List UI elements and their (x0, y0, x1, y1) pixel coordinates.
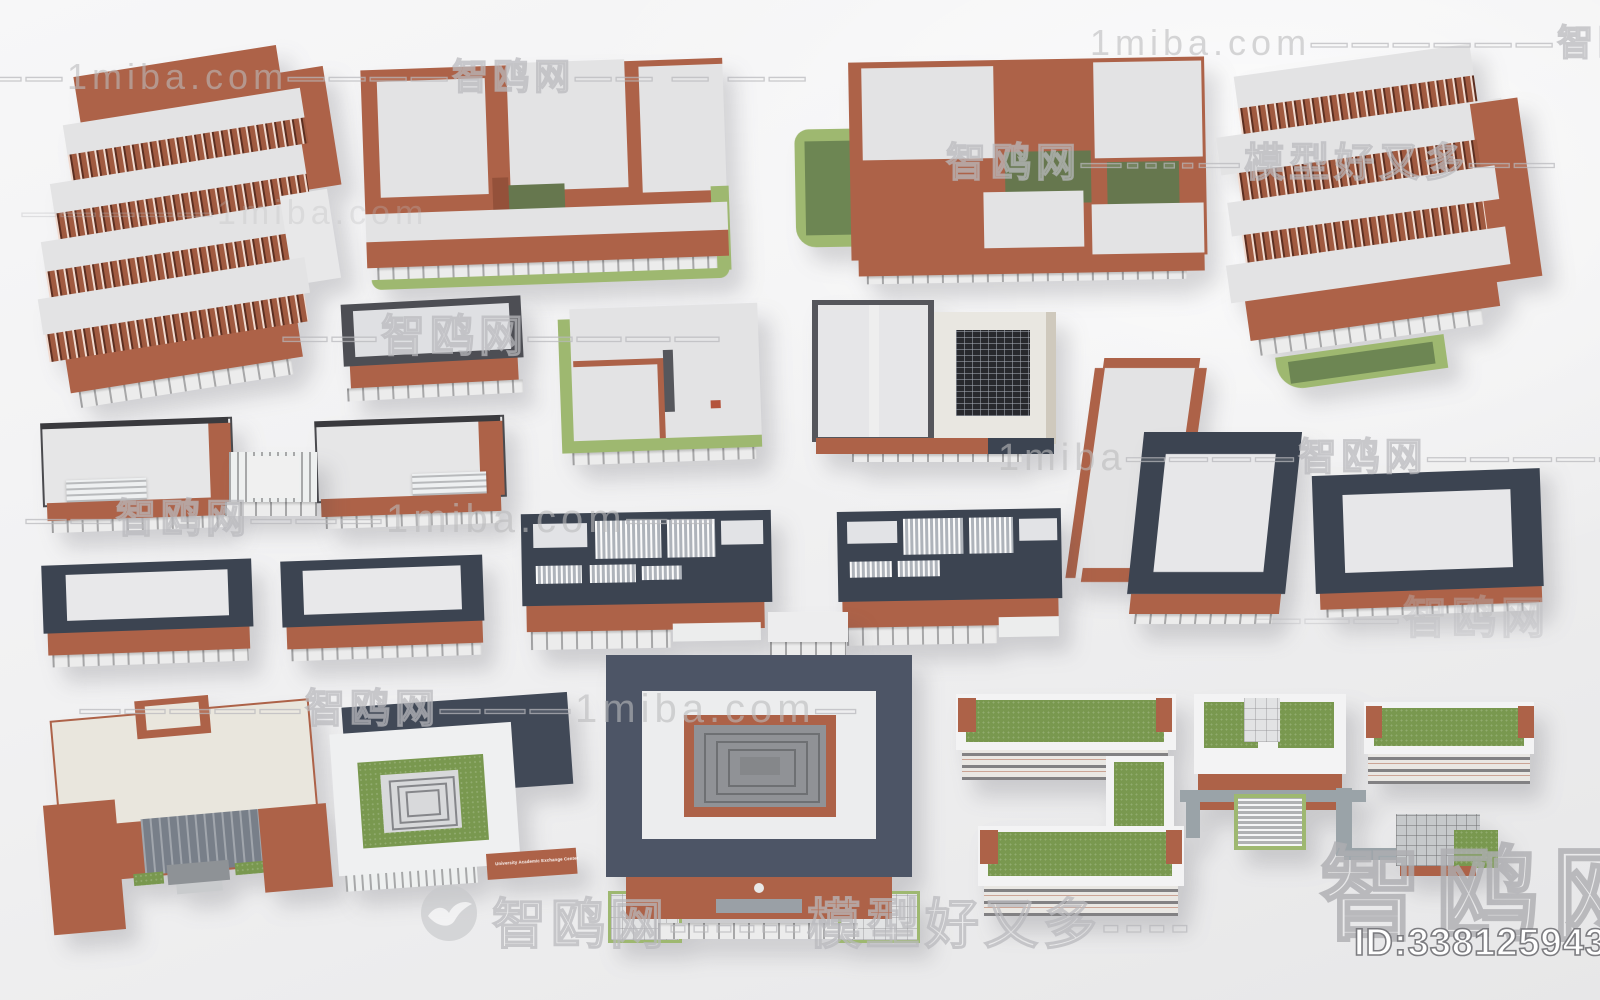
building-part (1244, 698, 1280, 742)
building-part (898, 560, 940, 577)
building-part (533, 523, 587, 548)
building-part (1336, 788, 1352, 856)
building-part (536, 565, 582, 584)
building-part (1046, 312, 1056, 444)
building-part (711, 400, 721, 408)
building-part (740, 757, 780, 775)
building-part (412, 471, 487, 496)
building-part (133, 872, 164, 887)
building-part (984, 886, 1178, 916)
hip-roof-classroom-block (341, 295, 526, 401)
flat-roof-green-band-building (557, 302, 772, 467)
building-part (506, 59, 628, 191)
building-part (1166, 830, 1182, 864)
building-part (1278, 702, 1334, 748)
building-part (405, 789, 441, 817)
building-part (667, 519, 716, 558)
building-part (249, 456, 299, 498)
navy-roof-slab-b (280, 554, 490, 667)
building-part (258, 803, 333, 893)
white-roof-slab-a (40, 417, 236, 536)
building-part (847, 521, 897, 544)
building-part (716, 899, 802, 913)
building-part (770, 642, 846, 656)
building-part (1518, 706, 1534, 738)
building-part (1342, 489, 1513, 573)
academic-complex-4 (1196, 37, 1562, 417)
building-part (1156, 698, 1172, 732)
gymnasium-solar-roof (812, 300, 1062, 462)
building-part (852, 454, 1022, 462)
building-part (531, 630, 671, 650)
building-part (903, 518, 964, 555)
building-part (595, 520, 662, 559)
building-part (1129, 594, 1281, 614)
building-part (1114, 762, 1164, 826)
building-part (969, 517, 1014, 554)
building-part (663, 350, 675, 412)
building-part (850, 561, 892, 578)
3d-model-preview: University Academic Exchange Center 智鸥网 … (0, 0, 1600, 1000)
link-platform (768, 612, 852, 658)
building-part (958, 698, 976, 732)
building-part (988, 832, 1172, 876)
building-part (1374, 708, 1524, 746)
link-bridge (225, 452, 321, 528)
building-part (353, 303, 511, 357)
academic-complex-1 (4, 36, 384, 414)
building-part (377, 78, 489, 198)
building-part (999, 616, 1059, 637)
building-part (225, 502, 317, 516)
building-part (1400, 866, 1476, 876)
building-part (1368, 754, 1530, 784)
building-part (1366, 706, 1382, 738)
building-part (642, 565, 682, 580)
building-part (303, 565, 462, 614)
building-part (1153, 454, 1275, 572)
building-part (966, 700, 1164, 742)
skylight-slab-a (521, 510, 779, 656)
building-part (1134, 614, 1273, 624)
building-part (1186, 790, 1200, 838)
academic-complex-3 (793, 56, 1209, 285)
building-part (673, 622, 761, 642)
navy-frame-hall-right (1311, 458, 1546, 618)
building-part (590, 564, 636, 583)
building-part (983, 191, 1084, 249)
building-part (1344, 848, 1402, 860)
building-part (145, 702, 201, 731)
green-roof-campus-complex (948, 678, 1540, 934)
building-part (1093, 60, 1203, 158)
building-part (721, 520, 763, 545)
building-part (1234, 794, 1306, 850)
building-part (988, 438, 1054, 454)
building-part (66, 478, 147, 503)
building-part (66, 569, 230, 621)
white-roof-slab-b (314, 415, 508, 530)
building-part (1092, 202, 1205, 258)
building-part (768, 612, 848, 642)
building-label: University Academic Exchange Center (486, 848, 578, 880)
academic-complex-2 (356, 52, 736, 293)
navy-frame-hall-center (1122, 432, 1304, 624)
building-part (1454, 830, 1498, 868)
building-part (956, 330, 1030, 416)
building-part (658, 923, 858, 939)
auditorium-courtyard-hall (598, 655, 920, 941)
building-part (980, 830, 998, 864)
u-shaped-dormitory (35, 687, 322, 937)
navy-roof-slab-a (41, 558, 259, 671)
building-part (638, 64, 726, 193)
building-part (1019, 518, 1057, 541)
building-part (847, 625, 997, 646)
skylight-slab-b (837, 508, 1067, 652)
academic-exchange-center: University Academic Exchange Center (327, 692, 582, 904)
building-part (1107, 161, 1180, 206)
exchange-center-label: University Academic Exchange Center (495, 857, 568, 867)
building-part (235, 861, 264, 875)
building-models-layer: University Academic Exchange Center (0, 0, 1600, 1000)
building-part (754, 883, 764, 893)
building-part (861, 66, 995, 160)
building-part (869, 305, 879, 437)
